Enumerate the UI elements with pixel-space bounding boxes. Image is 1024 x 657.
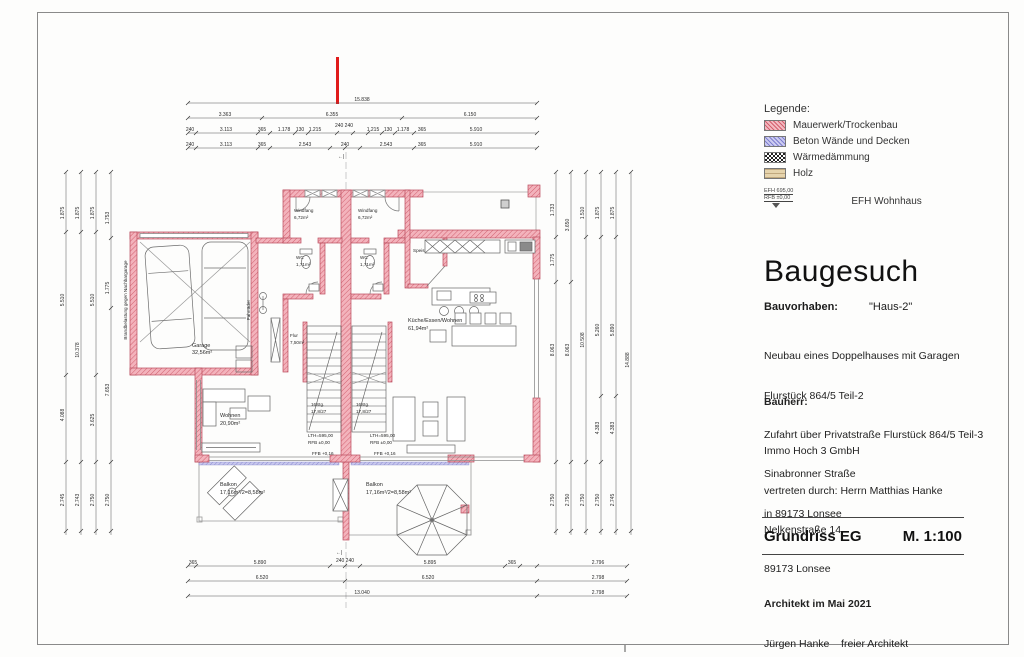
title-panel: Legende: Mauerwerk/Trockenbau Beton Wänd… xyxy=(758,0,1010,657)
room-label: WC xyxy=(296,255,304,260)
dim-text: 2.798 xyxy=(592,590,605,596)
room-area: 7,50m² xyxy=(290,340,305,345)
dim-text: 2.750 xyxy=(565,494,571,507)
dim-text: 2.745 xyxy=(60,494,66,507)
dim-text: 10.378 xyxy=(75,342,81,358)
dim-text: 2.750 xyxy=(105,494,111,507)
bauherr-label: Bauherr: xyxy=(764,396,808,409)
legend-item-label: Holz xyxy=(793,168,813,179)
dim-text: 2.743 xyxy=(75,494,81,507)
dim-text: 3.650 xyxy=(565,219,571,232)
room-area: 17,16m²/2=8,58m² xyxy=(366,490,411,496)
bicycle-icon xyxy=(260,293,267,314)
dim-text: 5.510 xyxy=(90,294,96,307)
beton-band xyxy=(351,462,469,465)
room-area: 61,94m² xyxy=(408,326,428,332)
dim-text: 4.383 xyxy=(595,422,601,435)
dim-text: 6.150 xyxy=(464,112,477,118)
legend-item-label: Wärmedämmung xyxy=(793,152,870,163)
dim-text: 1.875 xyxy=(90,207,96,220)
dim-labels-bottom: 365 5.890 240 240 5.895 365 2.796 6.520 … xyxy=(189,558,605,596)
mauerwerk-swatch-icon xyxy=(764,120,786,131)
level-marker-icon: EFH 695,00 RFB ±0,00 xyxy=(764,188,793,207)
legend-item-label: Beton Wände und Decken xyxy=(793,136,910,147)
dim-text: 1.875 xyxy=(60,207,66,220)
dim-text: 130 xyxy=(384,127,393,133)
room-area: 6,72m² xyxy=(358,215,373,220)
dim-text: 1.875 xyxy=(595,207,601,220)
stairs-dim: 17,8/27 xyxy=(356,409,372,414)
beton-band xyxy=(199,462,339,465)
dim-text: 3.113 xyxy=(220,142,232,148)
architect-block: Architekt im Mai 2021 Jürgen Hanke freie… xyxy=(764,572,1010,657)
level-triangle-icon xyxy=(772,203,780,208)
stairs-dim: 17,8/27 xyxy=(311,409,327,414)
kitchen-furniture xyxy=(425,240,535,346)
legend-item-beton: Beton Wände und Decken xyxy=(764,136,1004,147)
dim-text: 5.890 xyxy=(254,560,267,566)
level-label: EFH Wohnhaus xyxy=(851,196,921,207)
car xyxy=(144,245,195,350)
room-area: 17,16m²/2=8,58m² xyxy=(220,490,265,496)
desc-line: Neubau eines Doppelhauses mit Garagen xyxy=(764,350,1010,363)
dim-text: 365 xyxy=(258,142,267,148)
level-text: LTH=595,00 xyxy=(308,433,334,438)
dim-text: 1.510 xyxy=(580,207,586,220)
dim-text: 6.355 xyxy=(326,112,339,118)
daemmung-swatch-icon xyxy=(764,152,786,163)
dim-text: 2.750 xyxy=(595,494,601,507)
room-label: Windfang xyxy=(294,208,314,213)
dim-text: 4.088 xyxy=(60,409,66,422)
room-area: 1,71m² xyxy=(296,262,311,267)
legend-title: Legende: xyxy=(764,103,1004,115)
dim-text: 3.113 xyxy=(220,127,232,133)
dim-text: 1.875 xyxy=(75,207,81,220)
dim-text: 3.625 xyxy=(90,414,96,427)
dim-text: 1.178 xyxy=(397,127,410,133)
dim-text: 365 xyxy=(189,560,198,566)
dim-text: 365 xyxy=(418,127,427,133)
room-label: Garage xyxy=(192,343,210,349)
legend: Legende: Mauerwerk/Trockenbau Beton Wänd… xyxy=(764,103,1004,207)
dim-text: 2.543 xyxy=(380,142,393,148)
level-text: LTH=595,00 xyxy=(370,433,396,438)
stairs-label: 16Stg. xyxy=(356,402,369,407)
dim-text: 1.753 xyxy=(105,212,111,225)
dim-text: 2.745 xyxy=(610,494,616,507)
dim-text: 2.750 xyxy=(550,494,556,507)
dim-text: 240 xyxy=(341,142,350,148)
dim-text: 14.888 xyxy=(625,352,631,368)
bauvorhaben-value: "Haus-2" xyxy=(869,301,912,313)
drawing-scale: M. 1:100 xyxy=(903,528,962,545)
bauherr-line: vertreten durch: Herrn Matthias Hanke xyxy=(764,485,1010,498)
level-value: RFB ±0,00 xyxy=(764,195,793,202)
legend-item-holz: Holz xyxy=(764,168,1004,179)
page-title: Baugesuch xyxy=(764,255,919,289)
dim-text: 2.796 xyxy=(592,560,605,566)
bauvorhaben-label: Bauvorhaben: xyxy=(764,301,838,313)
drawing-sheet: 15.838 3.363 6.355 6.150 240 3.113 365 1… xyxy=(0,0,1024,657)
dim-text: 1.875 xyxy=(610,207,616,220)
stairs-label: 16Stg. xyxy=(311,402,324,407)
dim-text: 2.543 xyxy=(299,142,312,148)
bauvorhaben-row: Bauvorhaben: "Haus-2" xyxy=(764,301,912,313)
architect-line: Jürgen Hanke freier Architekt xyxy=(764,638,1010,651)
level-text: RFB ±0,00 xyxy=(370,440,392,445)
dim-text: 5.510 xyxy=(60,294,66,307)
room-label: Windfang xyxy=(358,208,378,213)
room-area: 1,71m² xyxy=(360,262,375,267)
level-value: EFH 695,00 xyxy=(764,188,793,195)
dim-text: 5.260 xyxy=(595,324,601,337)
room-label: Wohnen xyxy=(220,413,240,419)
dim-text: 1.733 xyxy=(550,204,556,217)
dim-text: 8.063 xyxy=(565,344,571,357)
room-label: Speis xyxy=(413,248,425,253)
dim-text: 1.215 xyxy=(309,127,322,133)
drawing-title-row: Grundriss EG M. 1:100 xyxy=(762,517,964,555)
dim-text: 240 xyxy=(186,127,195,133)
dim-text: 365 xyxy=(418,142,427,148)
room-label: Balkon xyxy=(366,482,383,488)
level-marker-row: EFH 695,00 RFB ±0,00 EFH Wohnhaus xyxy=(764,188,1004,207)
beton-swatch-icon xyxy=(764,136,786,147)
brandwand-note: Brandbelastung gegen Nachbargarage xyxy=(123,260,128,340)
dim-text: 365 xyxy=(258,127,267,133)
dim-text: 5.910 xyxy=(470,142,483,148)
holz-swatch-icon xyxy=(764,168,786,179)
balcony-furniture xyxy=(207,466,467,555)
room-area: 32,56m² xyxy=(192,350,212,356)
dim-text: 5.890 xyxy=(610,324,616,337)
dim-text: 130 xyxy=(296,127,305,133)
section-marker: ←| xyxy=(338,154,344,160)
dim-text: 4.383 xyxy=(610,422,616,435)
room-label: WC xyxy=(360,255,368,260)
dim-text: 15.838 xyxy=(354,97,370,103)
room-label: Küche/Essen/Wohnen xyxy=(408,318,462,324)
level-text: FFB +0,16 xyxy=(374,451,396,456)
dim-text: 10.508 xyxy=(580,332,586,348)
dim-text: 365 xyxy=(508,560,517,566)
dim-text: 6.520 xyxy=(256,575,269,581)
dim-text: 1.215 xyxy=(367,127,380,133)
dim-text: 240 240 xyxy=(335,123,353,129)
dim-text: 3.363 xyxy=(219,112,232,118)
dim-text: 2.750 xyxy=(90,494,96,507)
fahrrad-note: Fahrräder xyxy=(246,299,251,320)
dim-labels-top: 15.838 3.363 6.355 6.150 240 3.113 365 1… xyxy=(186,97,483,148)
dim-text: 2.750 xyxy=(580,494,586,507)
level-text: FFB +0,16 xyxy=(312,451,334,456)
dim-labels-left: 1.875 5.510 4.088 2.745 1.875 10.378 2.7… xyxy=(60,207,111,507)
legend-item-mauerwerk: Mauerwerk/Trockenbau xyxy=(764,120,1004,131)
bauherr-line: Immo Hoch 3 GmbH xyxy=(764,445,1010,458)
room-area: 6,72m² xyxy=(294,215,309,220)
dim-labels-right: 1.733 1.775 8.063 2.750 3.650 8.063 2.75… xyxy=(550,204,631,507)
room-label: Balkon xyxy=(220,482,237,488)
dim-text: 7.653 xyxy=(105,384,111,397)
architect-header: Architekt im Mai 2021 xyxy=(764,598,1010,611)
dim-text: 5.910 xyxy=(470,127,483,133)
dim-text: 1.178 xyxy=(278,127,291,133)
dim-text: 8.063 xyxy=(550,344,556,357)
legend-item-daemmung: Wärmedämmung xyxy=(764,152,1004,163)
dim-text: 2.798 xyxy=(592,575,605,581)
dim-text: 5.895 xyxy=(424,560,437,566)
entrance-porch xyxy=(423,192,536,236)
dim-text: 1.775 xyxy=(105,282,111,295)
legend-item-label: Mauerwerk/Trockenbau xyxy=(793,120,898,131)
drawing-title: Grundriss EG xyxy=(764,528,862,545)
dim-text: 1.775 xyxy=(550,254,556,267)
dim-text: 13.040 xyxy=(354,590,370,596)
level-text: RFB ±0,00 xyxy=(308,440,330,445)
red-marker-annotation xyxy=(336,57,339,104)
dim-text: 240 240 xyxy=(336,558,354,564)
section-marker: ←| xyxy=(336,550,342,556)
room-label: Flur xyxy=(290,333,298,338)
lounge-furniture xyxy=(393,397,465,453)
dim-text: 6.520 xyxy=(422,575,435,581)
room-area: 20,90m² xyxy=(220,421,240,427)
dim-text: 240 xyxy=(186,142,195,148)
